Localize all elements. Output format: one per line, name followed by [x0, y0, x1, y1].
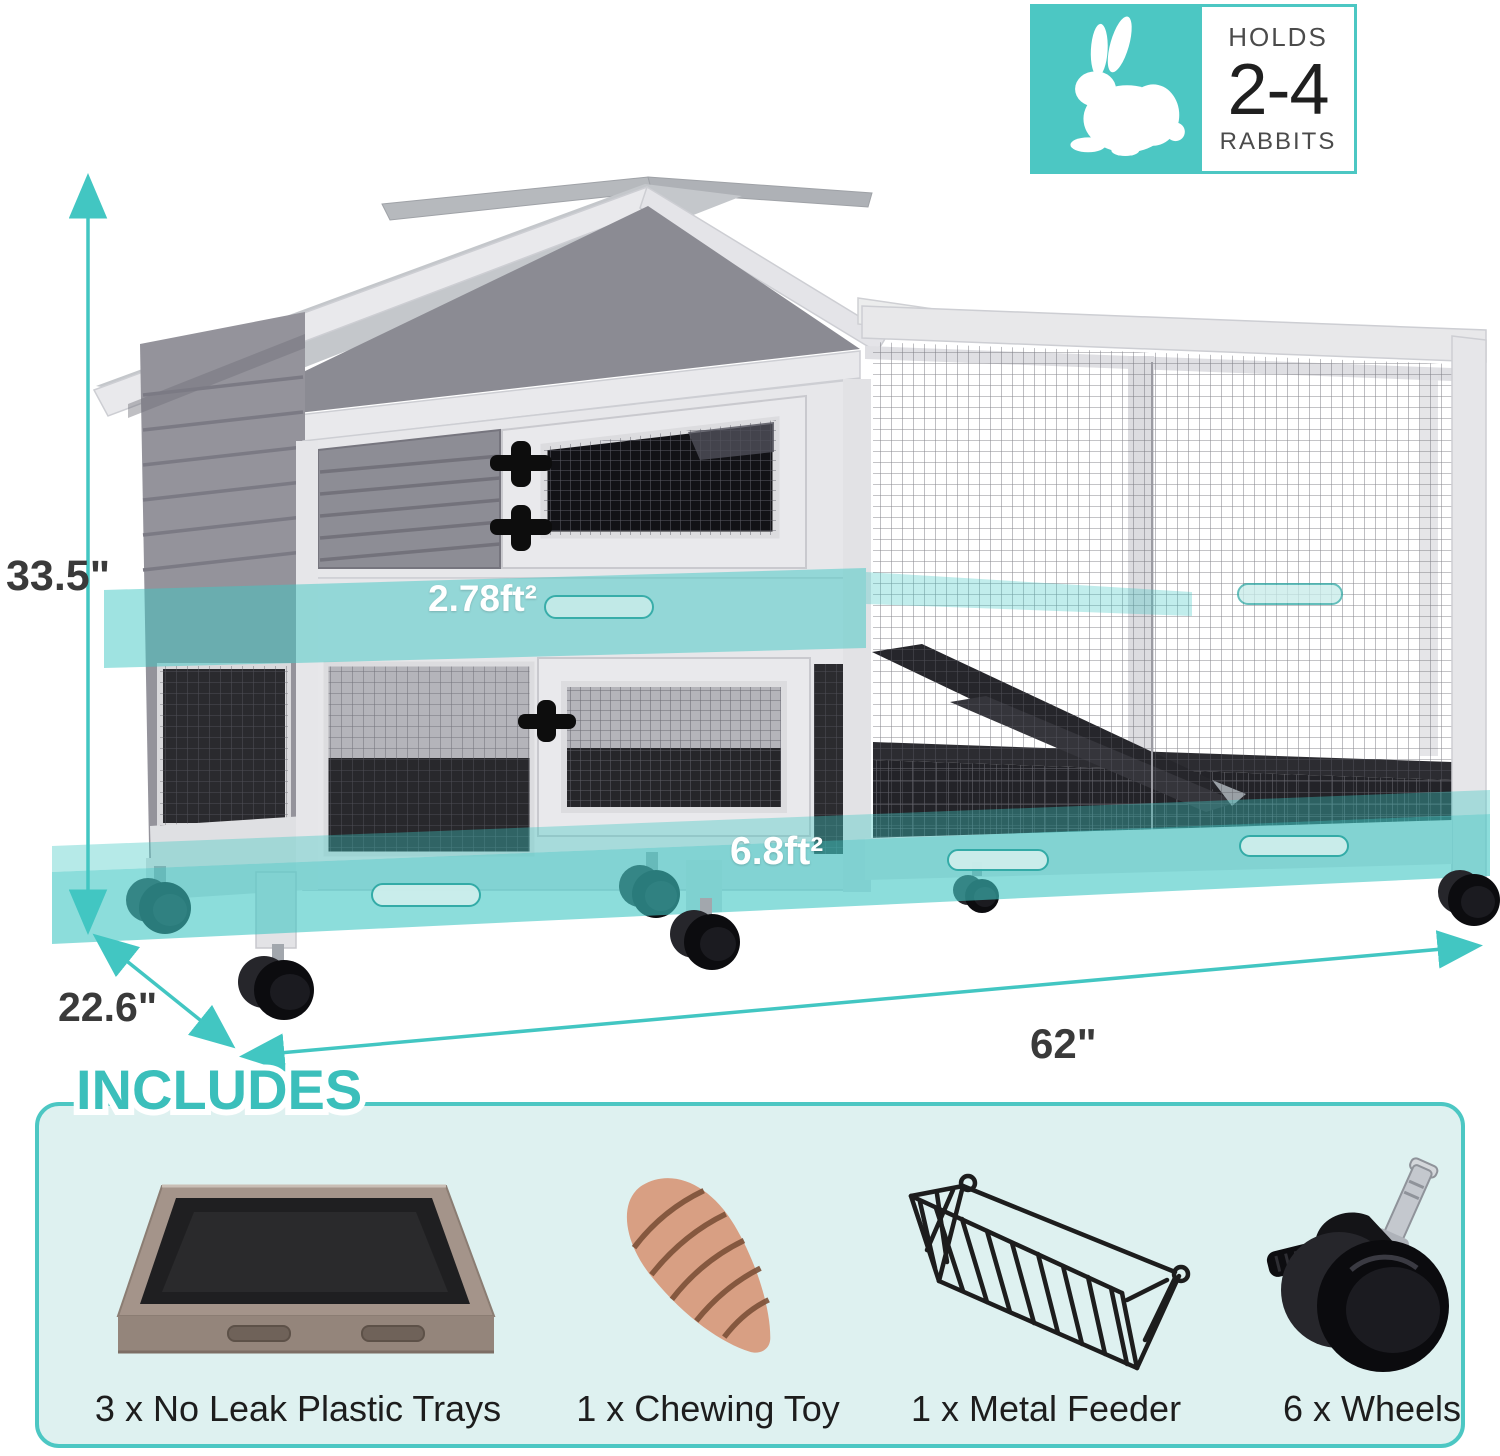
- lower-door: [518, 658, 810, 836]
- upper-floor-area-label: 2.78ft²: [428, 578, 537, 620]
- caster-wheel: [1438, 870, 1500, 926]
- rabbits-label: RABBITS: [1220, 128, 1337, 156]
- metal-feeder-icon: [875, 1150, 1205, 1385]
- plastic-tray-icon: [110, 1168, 500, 1373]
- capacity-badge: HOLDS 2-4 RABBITS: [1030, 4, 1357, 174]
- lower-left-mesh-panel: [326, 664, 532, 854]
- depth-dimension-label: 22.6": [58, 984, 157, 1031]
- holds-label: HOLDS: [1228, 22, 1328, 53]
- item-label-wheels: 6 x Wheels: [1283, 1388, 1461, 1430]
- height-dimension-label: 33.5": [6, 552, 110, 601]
- includes-title: INCLUDES INCLUDES: [76, 1062, 362, 1118]
- rabbit-icon: [1030, 4, 1202, 174]
- includes-title-text: INCLUDES: [76, 1058, 362, 1121]
- caster-wheel-icon: [1245, 1150, 1475, 1385]
- item-label-trays: 3 x No Leak Plastic Trays: [95, 1388, 501, 1430]
- chewing-toy-icon: [590, 1148, 820, 1388]
- caster-wheel: [238, 944, 314, 1020]
- item-label-metal-feeder: 1 x Metal Feeder: [911, 1388, 1181, 1430]
- width-dimension-label: 62": [1030, 1020, 1097, 1068]
- lower-floor-area-label: 6.8ft²: [730, 830, 823, 874]
- width-arrow: [246, 946, 1476, 1056]
- item-label-chewing-toy: 1 x Chewing Toy: [576, 1388, 839, 1430]
- capacity-count: 2-4: [1227, 53, 1328, 129]
- product-infographic: 33.5" 22.6" 62" 2.78ft² 6.8ft² HOLDS 2: [0, 0, 1500, 1456]
- capacity-panel: HOLDS 2-4 RABBITS: [1202, 4, 1357, 174]
